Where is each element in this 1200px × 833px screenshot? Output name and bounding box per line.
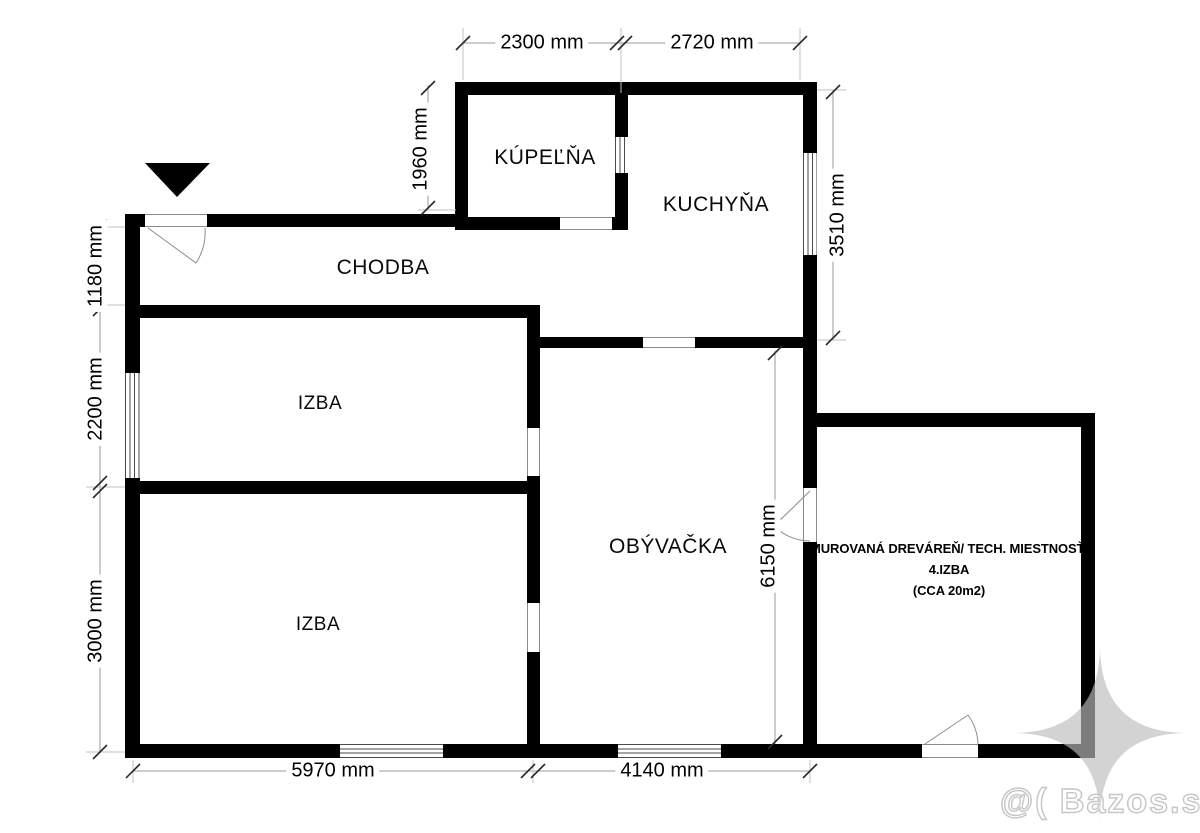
watermark-text: @( Bazos.sk <box>1000 783 1200 822</box>
floor-plan: KÚPEĽŇA KUCHYŇA CHODBA IZBA IZBA OBÝVAČK… <box>0 0 1200 833</box>
watermark-star-icon <box>0 0 1200 833</box>
